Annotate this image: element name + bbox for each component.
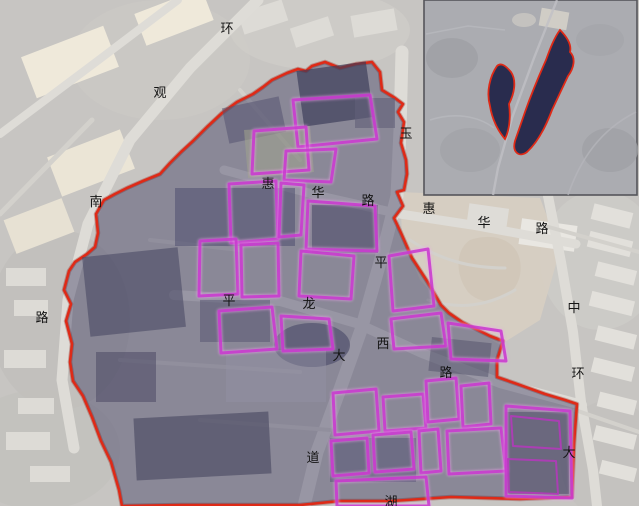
road-label-char: 路 [535, 221, 548, 237]
road-label-char: 路 [361, 193, 374, 209]
road-label-char: 路 [35, 310, 48, 326]
road-label-char: 玉 [399, 127, 412, 142]
inset-map [424, 0, 638, 195]
road-label-char: 华 [477, 216, 490, 231]
road-label-char: 大 [332, 349, 345, 364]
road-label-char: 湖 [384, 495, 397, 506]
road-label-char: 道 [306, 451, 319, 466]
road-label-char: 中 [567, 301, 580, 316]
road-label-char: 华 [311, 186, 324, 201]
road-label-char: 环 [220, 22, 233, 37]
road-label-char: 环 [571, 367, 584, 382]
road-label-char: 观 [153, 86, 166, 101]
road-label-char: 龙 [302, 297, 315, 312]
satellite-planning-map: 环 观 南 路 惠 华 路 惠 华 路 玉 平 大 道 平 龙 西 路 中 环 … [0, 0, 639, 506]
road-label-char: 平 [374, 256, 387, 271]
road-label-char: 惠 [422, 202, 435, 217]
road-label-char: 西 [376, 337, 389, 352]
road-label-char: 大 [562, 446, 575, 461]
road-label-char: 南 [89, 194, 102, 210]
road-label-char: 平 [222, 294, 235, 309]
road-label-char: 惠 [261, 177, 274, 192]
road-label-char: 路 [439, 365, 452, 381]
